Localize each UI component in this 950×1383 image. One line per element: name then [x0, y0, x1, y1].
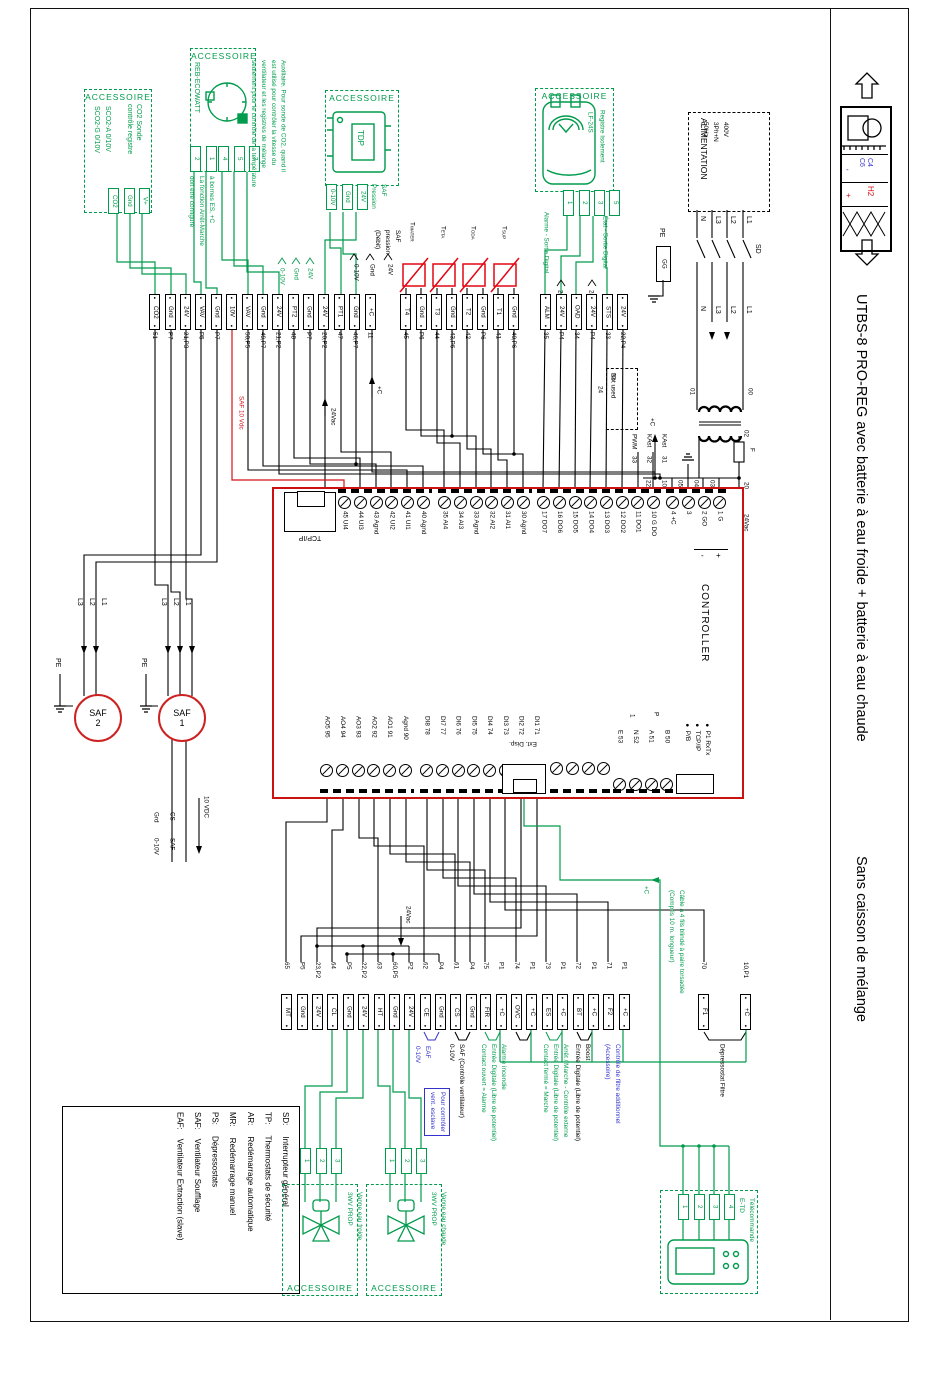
power-underline [694, 549, 728, 550]
co2-name: CO2 Sonde [135, 104, 142, 141]
terminal: OAD34 [569, 294, 584, 362]
terminal: 10V [224, 294, 239, 362]
terminal: 64CL [325, 962, 340, 1030]
bottom-f1-terminal: 70F1 [696, 962, 711, 1030]
terminal: 3 [329, 1148, 344, 1206]
screw-terminal[interactable]: AO3 93 [350, 716, 366, 779]
top-row-status: ALM3524VP4OAD3424VP4STS3324V22,P4 [538, 294, 630, 362]
note-line: 400V [720, 122, 730, 142]
sd-switch-label: SD [754, 244, 761, 254]
legend-entry: AR: Redémarrage automatique [241, 1112, 259, 1288]
note-line: Contrôle de filtre additionnel [612, 1044, 622, 1124]
eaf-note-box: Pour contrôlervent. esclave [424, 1088, 450, 1136]
unit-plus-label: + [846, 192, 851, 200]
saf-slave-label: SAF [168, 838, 174, 850]
note-line: Pression [368, 184, 378, 209]
alarme-sortie-label: Alarme - Sortie Digital [542, 212, 548, 273]
terminal: 1 [298, 1148, 313, 1206]
terminal: VAV50,P5 [239, 294, 254, 362]
terminal: P4Gnd [464, 962, 479, 1030]
screw-terminal[interactable]: 11 DO1 [630, 494, 646, 557]
phase-l2-label: L2 [729, 216, 736, 224]
saf1-l2: L2 [172, 598, 179, 606]
saf2-l2: L2 [88, 598, 95, 606]
terminal: GndP6 [413, 294, 428, 362]
note-line: EAF [422, 1046, 432, 1063]
terminal: 65MT [279, 962, 294, 1030]
tdp-terminal-strip: 0-10VGnd24V [324, 184, 370, 242]
lf24s-terminal-strip: 1235 [561, 190, 623, 248]
note-line: SAF [378, 184, 388, 209]
wire-10-label: 10 [660, 480, 666, 487]
terminal: 1 [383, 1148, 398, 1206]
saf2-l3: L3 [76, 598, 83, 606]
wire-02-label: 02 [742, 430, 748, 437]
terminal: PT147 [332, 294, 347, 362]
terminal: 24V22,P4 [615, 294, 630, 362]
bottom-row-outputs: 65MTP5Gnd23,P224V64CLP5Gnd22,P224V63HT60… [279, 962, 479, 1030]
terminal: 24VP4 [584, 294, 599, 362]
note-line: Entrée Digitale (Libre de potentiel) [572, 1044, 582, 1141]
plus-c-green-label: +C [642, 886, 648, 894]
valve-hot-label: Vanne eau chaude3WV PROP [428, 1192, 448, 1245]
power-terminals[interactable]: 4 +C32 GO1 G [665, 494, 728, 557]
kast1-label: KAst [645, 434, 651, 447]
etd-label: TélécommandeE-TD [736, 1198, 756, 1242]
terminal: +C11 [362, 294, 377, 362]
tdp-wl-24v: 24V [386, 264, 392, 275]
top-row-sensors: T445GndP6T344Gnd43,P6T242GndP6T141Gnd40,… [398, 294, 521, 362]
valve-cold-label: Vanne eau froide3WV PROP [344, 1192, 364, 1240]
comm-terminals[interactable]: E 53N 52A 51B 50 [612, 730, 675, 793]
saf2-label: SAF [89, 708, 107, 718]
schematic-page: UTBS-8 PRO-REG avec batterie à eau froid… [0, 0, 950, 1383]
wire-22-label: 22 [644, 480, 650, 487]
terminal: P4Gnd [433, 962, 448, 1030]
ecowatt-note-config: à bornes ES, +CLa fonction Arrêt-Marched… [186, 176, 216, 246]
screw-terminal[interactable]: 1 G [712, 494, 728, 557]
cs-label: CS [168, 812, 174, 821]
terminal: P1+C [586, 962, 601, 1030]
terminal: 24VP4 [553, 294, 568, 362]
terminal: PT248 [286, 294, 301, 362]
tcpip-port[interactable] [284, 492, 336, 532]
etat-sortie-label: État - Sortie Digital [601, 216, 607, 269]
ecowatt-note-aux: Auxiliaire. Pour sonde de CO2, quand ile… [248, 60, 288, 187]
screw-terminal[interactable] [565, 760, 581, 777]
screw-terminal[interactable]: AO2 92 [366, 716, 382, 779]
fire-annotation: Alarme incendieEntrée Digitale (Libre de… [478, 1044, 508, 1141]
0-10v-label: 0-10V [152, 838, 158, 855]
screw-terminal[interactable]: 32 AI2 [484, 494, 500, 557]
sensor-label-twater: TWATER [408, 222, 414, 242]
run-annotation: Arrêt / Marche - Contrôle externeEntrée … [540, 1044, 570, 1141]
wire-00-label: 00 [746, 388, 752, 395]
kast1-num: 32 [645, 456, 651, 463]
screw-terminal[interactable]: 44 UI3 [353, 494, 369, 557]
note-line: (Compris 10 m. longueur) [666, 890, 676, 994]
screw-terminal[interactable]: 12 DO2 [614, 494, 630, 557]
co2-accessory-header: ACCESSOIRE [85, 92, 151, 102]
terminal: 2 [576, 190, 591, 248]
do-terminals[interactable]: 17 DO716 DO615 DO514 DO413 DO312 DO211 D… [536, 494, 662, 557]
valve-cold-strip: 123 [298, 1148, 344, 1206]
note-line: Alarme incendie [498, 1044, 508, 1141]
note-line: Arrêt / Marche - Contrôle externe [560, 1044, 570, 1141]
unit-cell-line1 [840, 154, 888, 155]
note-line: ● TCP/IP [692, 722, 702, 755]
terminal: 1 [561, 190, 576, 248]
terminal: 5 [607, 190, 622, 248]
valve-hot-header: ACCESSOIRE [367, 1283, 441, 1293]
screw-terminal[interactable]: 17 DO7 [536, 494, 552, 557]
terminal: P1+C [617, 962, 632, 1030]
filter-annotation: Contrôle de filtre additionnel(Accessoir… [602, 1044, 622, 1124]
vdc-label: 10 VDC [202, 796, 208, 818]
saf2-number: 2 [95, 718, 100, 728]
screw-terminal[interactable]: B 50 [659, 730, 675, 793]
lf24s-accessory-header: ACCESSOIRE [536, 91, 613, 101]
terminal: 22,P224V [356, 962, 371, 1030]
note-line: 50Hz [700, 122, 710, 142]
wire-04-label: 04 [692, 480, 698, 487]
screw-terminal[interactable]: DI6 76 [450, 716, 466, 779]
saf1-l3: L3 [160, 598, 167, 606]
wire-23-label: 23 [609, 373, 615, 380]
terminal: 3 [707, 1194, 722, 1252]
note-line: (Accessoire) [602, 1044, 612, 1124]
ecowatt-wire-0-10v: 0-10V [278, 268, 284, 285]
terminal: 75FIR [478, 962, 493, 1030]
tdp-bracket-label: SAFpression(Débit) [372, 230, 402, 254]
terminal: Gnd [121, 188, 136, 246]
unit-c6-label: C6 [858, 158, 865, 167]
pwm-num: 33 [630, 456, 636, 463]
pwm-label: PWM [630, 434, 636, 449]
screw-terminal[interactable]: A 51 [643, 730, 659, 793]
note-line: Boost [582, 1044, 592, 1141]
screw-terminal[interactable]: DI8 78 [419, 716, 435, 779]
terminal: 3 [414, 1148, 429, 1206]
terminal: P1+C [493, 962, 508, 1030]
terminal: 61CS [448, 962, 463, 1030]
terminal: 74OVC [509, 962, 524, 1030]
saf1-l1: L1 [184, 598, 191, 606]
phase2-n-label: N [699, 306, 706, 311]
ecowatt-wire-gnd: Gnd [292, 268, 298, 280]
terminal: GndP7 [301, 294, 316, 362]
ao-dashbar [320, 789, 414, 793]
note-line: Télécommande [746, 1198, 756, 1242]
note-line: E-TD [736, 1198, 746, 1242]
phase2-l3-label: L3 [714, 306, 721, 314]
terminal: 72BT [570, 962, 585, 1030]
terminal: 70F1 [696, 962, 711, 1030]
spare-terminals[interactable] [549, 760, 612, 777]
screw-terminal[interactable]: AO4 94 [335, 716, 351, 779]
comm-dashbar [613, 789, 675, 793]
legend-content: SD: Interrupteur généralTP: Thermostats … [66, 1112, 294, 1288]
screw-terminal[interactable]: 3 [681, 494, 697, 557]
terminal: 0-10V [324, 184, 339, 242]
legend-entry: SAF: Ventilateur Soufflage [188, 1112, 206, 1288]
tdp-wl-gnd: Gnd [368, 264, 374, 276]
terminal: 23,P224V [310, 962, 325, 1030]
phase2-l2-label: L2 [729, 306, 736, 314]
co2-opt1: SCO2-A 0/10V [104, 106, 111, 152]
ext-disp-port[interactable] [502, 764, 546, 794]
ui-dashbar [338, 489, 432, 493]
depressostat-label: Dépressostat Filtre [718, 1044, 724, 1097]
terminal: STS33 [600, 294, 615, 362]
note-line: SAF [392, 230, 402, 254]
phase-l3-label: L3 [714, 216, 721, 224]
note-line: Contact ouvert = Alarme [478, 1044, 488, 1141]
terminal: 60,P5Gnd [387, 962, 402, 1030]
screw-terminal[interactable]: 15 DO5 [567, 494, 583, 557]
screw-terminal[interactable]: 33 Agnd [468, 494, 484, 557]
ui-terminals[interactable]: 45 UI444 UI343 Agnd42 UI241 UI140 Agnd [337, 494, 431, 557]
screw-terminal[interactable]: 30 Agnd [515, 494, 531, 557]
screw-terminal[interactable]: 13 DO3 [599, 494, 615, 557]
ao-terminals[interactable]: AO5 95AO4 94AO3 93AO2 92AO1 91Agnd 90 [319, 716, 413, 779]
grd-label: Grd [152, 812, 158, 823]
saf1-label: SAF [173, 708, 191, 718]
ecowatt-wire-24v: 24V [306, 268, 312, 279]
24vac-bottom-label: 24Vac [404, 906, 410, 923]
comm-one-label: 1 [628, 714, 634, 718]
note-line: Entrée Digitale (Libre de potentiel) [488, 1044, 498, 1141]
fuse-label: F [748, 448, 754, 452]
unit-h2-label: H2 [866, 186, 874, 196]
terminal: ALM35 [538, 294, 553, 362]
terminal: 24V21,P3 [178, 294, 193, 362]
co2-opt2: SCO2-G 0/10V [93, 106, 100, 153]
terminal: 4 [216, 146, 231, 204]
sensor-label-toda: TODA [469, 226, 475, 240]
saf2-l1: L1 [100, 598, 107, 606]
pwr-dashbar [666, 489, 728, 493]
terminal: V+ [137, 188, 152, 246]
screw-terminal[interactable]: 10 G DO [646, 494, 662, 557]
terminal: CO2 [106, 188, 121, 246]
note-line: 3Ph+N [710, 122, 720, 142]
pe-terminal: GG [656, 246, 671, 282]
note-line: pression [382, 230, 392, 254]
unit-icon-frame [840, 106, 892, 252]
tcpip-port-label: TCP/IP [288, 534, 332, 541]
terminal: 24V20,P2 [316, 294, 331, 362]
note-line: ● P/B [682, 722, 692, 755]
screw-terminal[interactable]: 34 AI3 [453, 494, 469, 557]
tdp-label: SAFPression [368, 184, 388, 209]
screw-terminal[interactable]: 14 DO4 [583, 494, 599, 557]
terminal: 24V21,P2 [270, 294, 285, 362]
terminal: GndP7 [162, 294, 177, 362]
note-line: Entrée Digitale (Libre de potentiel) [550, 1044, 560, 1141]
boost-annotation: BoostEntrée Digitale (Libre de potentiel… [572, 1044, 592, 1141]
title-column-divider [830, 8, 831, 1320]
comm-p-label: P [652, 712, 658, 716]
note-line: est utilisé pour contrôler la vitesse du [268, 60, 278, 187]
sensor-label-tsup: TSUP [500, 226, 506, 239]
terminal: T242 [460, 294, 475, 362]
ecowatt-name: REB-ECOWATT [193, 62, 200, 113]
terminal: 63HT [371, 962, 386, 1030]
24vac-mid-label: 24Vac [329, 408, 335, 425]
terminal: T344 [429, 294, 444, 362]
ai-terminals[interactable]: 35 AI434 AI333 Agnd32 AI231 AI130 Agnd [437, 494, 531, 557]
note-line: seulement pour le contrôle de la tempéra… [248, 60, 258, 187]
etd-strip: 1234 [676, 1194, 738, 1252]
note-line: 3WV PROP [344, 1192, 354, 1240]
pe-label: PE [658, 228, 665, 237]
lf24s-name: Registre Isolement [598, 110, 604, 163]
terminal: P5Gnd [294, 962, 309, 1030]
screw-terminal[interactable]: 41 UI1 [400, 494, 416, 557]
terminal: Gnd49,P7 [255, 294, 270, 362]
note-line: ventilateur et les registres de mélange [258, 60, 268, 187]
ecowatt-accessory-header: ACCESSOIRE [191, 51, 255, 61]
service-port[interactable] [676, 774, 714, 794]
screw-terminal[interactable]: AO5 95 [319, 716, 335, 779]
screw-terminal[interactable] [596, 760, 612, 777]
terminal: Gnd [339, 184, 354, 242]
unit-cell-line3 [840, 206, 888, 207]
terminal: P1+C [524, 962, 539, 1030]
screw-terminal[interactable]: AO1 91 [382, 716, 398, 779]
alimentation-specs: 400V3Ph+N50Hz [700, 122, 730, 142]
co2-terminal-strip: CO2GndV+ [106, 188, 152, 246]
terminal: 10,P1+C [738, 962, 753, 1030]
ai-dashbar [438, 489, 532, 493]
power-plus-label: + [716, 552, 721, 560]
screw-terminal[interactable]: 40 Agnd [415, 494, 431, 557]
do-dashbar [537, 489, 661, 493]
co2-name2: contrôle registre [126, 104, 133, 154]
terminal: T141 [490, 294, 505, 362]
saf2-pe: PE [54, 658, 61, 667]
terminal: T445 [398, 294, 413, 362]
legend-entry: EAF: Ventilateur Extraction (slave) [171, 1112, 189, 1288]
terminal: P224V [402, 962, 417, 1030]
note-line: à bornes ES, +C [206, 176, 216, 246]
phase2-l1-label: L1 [745, 306, 752, 314]
screw-terminal[interactable]: 4 +C [665, 494, 681, 557]
ext-disp-label: Ext. Disp. [500, 740, 546, 747]
spare-dashbar [550, 789, 610, 793]
terminal: 73ES [540, 962, 555, 1030]
kast2-label: KAst [660, 434, 666, 447]
wire-05-label: 05 [676, 480, 682, 487]
screw-terminal[interactable]: 42 UI2 [384, 494, 400, 557]
screw-terminal[interactable]: 43 Agnd [368, 494, 384, 557]
note-line: Auxiliaire. Pour sonde de CO2, quand il [278, 60, 288, 187]
not-used-box: Not used 23 [606, 368, 638, 430]
wire-01-label: 01 [688, 388, 694, 395]
sensor-label-teta: TETA [439, 226, 445, 238]
terminal: Gnd46,P7 [347, 294, 362, 362]
terminal: 1 [676, 1194, 691, 1252]
saf1-pe: PE [140, 658, 147, 667]
screw-terminal[interactable]: DI5 75 [466, 716, 482, 779]
terminal: 2 [313, 1148, 328, 1206]
tdp-accessory-header: ACCESSOIRE [326, 93, 398, 103]
terminal: 2 [691, 1194, 706, 1252]
tdp-name: TDP [356, 130, 364, 146]
sheet-subtitle: Sans caisson de mélange [853, 856, 869, 1022]
note-line: Contact fermé = Marche [540, 1044, 550, 1141]
screw-terminal[interactable]: DI4 74 [482, 716, 498, 779]
screw-terminal[interactable]: 45 UI4 [337, 494, 353, 557]
screw-terminal[interactable] [549, 760, 565, 777]
wire-03-label: 03 [708, 480, 714, 487]
phase-l1-label: L1 [745, 216, 752, 224]
screw-terminal[interactable]: E 53 [612, 730, 628, 793]
saf1-fan: SAF 1 [158, 694, 206, 742]
phase-n-label: N [699, 216, 706, 221]
wire-24-label: 24 [596, 386, 602, 393]
note-line: vent. esclave [427, 1092, 437, 1132]
terminal: GndP7 [209, 294, 224, 362]
terminal: CO251 [147, 294, 162, 362]
note-line: 0-10V [412, 1046, 422, 1063]
legend-entry: SD: Interrupteur général [276, 1112, 294, 1288]
note-line: La fonction Arrêt-Marche [196, 176, 206, 246]
screw-terminal[interactable]: 31 AI1 [500, 494, 516, 557]
screw-terminal[interactable]: 16 DO6 [552, 494, 568, 557]
lf24s-model: LF-24S [586, 112, 592, 133]
note-line: 3WV PROP [428, 1192, 438, 1245]
screw-terminal[interactable] [580, 760, 596, 777]
pe-terminal-label: GG [660, 259, 666, 269]
led-labels: ● P1 RxTx● TCP/IP● P/B [682, 722, 712, 755]
top-row-io: CO251GndP724V21,P3VAVP5GndP710VVAV50,P5G… [147, 294, 378, 362]
sheet-title: UTBS-8 PRO-REG avec batterie à eau froid… [853, 294, 869, 742]
note-line: (Débit) [372, 230, 382, 254]
screw-terminal[interactable]: DI7 77 [435, 716, 451, 779]
screw-terminal[interactable]: 35 AI4 [437, 494, 453, 557]
note-line: Câble à 4 fils blindé à paire torsadée [676, 890, 686, 994]
terminal: 2 [398, 1148, 413, 1206]
screw-terminal[interactable]: N 52 [628, 730, 644, 793]
terminal: Gnd43,P6 [444, 294, 459, 362]
terminal: 5 [231, 146, 246, 204]
cable-note: Câble à 4 fils blindé à paire torsadée(C… [666, 890, 686, 994]
screw-terminal[interactable]: 2 GO [696, 494, 712, 557]
bottom-row-inputs: 75FIRP1+C74OVCP1+C73ESP1+C72BTP1+C71F2P1… [478, 962, 632, 1030]
note-line: Vanne eau chaude [438, 1192, 448, 1245]
eaf-annotation: EAF0-10V [412, 1046, 432, 1063]
power-minus-label: - [701, 552, 704, 560]
unit-minus-label: - [846, 166, 849, 174]
screw-terminal[interactable]: Agnd 90 [397, 716, 413, 779]
note-line: Vanne eau froide [354, 1192, 364, 1240]
unit-cell-line2 [840, 182, 888, 183]
plus-c-up-label: +C [648, 418, 654, 426]
terminal: 62CE [418, 962, 433, 1030]
terminal: GndP6 [475, 294, 490, 362]
note-line: doit être configuré [186, 176, 196, 246]
tdp-wl-0-10v: 0-10V [352, 264, 358, 281]
terminal: Gnd40,P6 [506, 294, 521, 362]
note-line: ● P1 RxTx [702, 722, 712, 755]
terminal: P5Gnd [341, 962, 356, 1030]
legend-entry: PS: Dépressostats [206, 1112, 224, 1288]
bottom-pc-terminal: 10,P1+C [738, 962, 753, 1030]
saf1-number: 1 [179, 718, 184, 728]
plus-c-11-label: +C [375, 386, 381, 394]
